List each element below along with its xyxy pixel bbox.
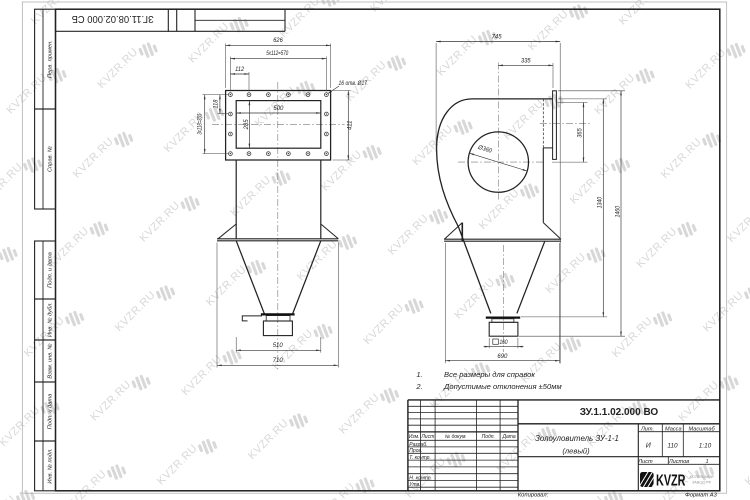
svg-text:Масштаб: Масштаб	[689, 427, 716, 433]
svg-text:2.: 2.	[415, 382, 422, 391]
svg-text:3x118=355: 3x118=355	[197, 113, 204, 134]
svg-text:Инв. № подл.: Инв. № подл.	[47, 448, 53, 483]
svg-text:1:10: 1:10	[699, 443, 712, 450]
svg-text:Н. контр.: Н. контр.	[409, 475, 432, 481]
svg-text:690: 690	[497, 353, 507, 360]
svg-text:411: 411	[346, 120, 353, 130]
svg-text:КОТЕЛЬНЫЙ: КОТЕЛЬНЫЙ	[690, 475, 714, 479]
svg-text:16 отв. Ø17: 16 отв. Ø17	[339, 81, 368, 87]
svg-text:Справ. №: Справ. №	[47, 146, 53, 172]
svg-text:1.: 1.	[416, 370, 422, 379]
svg-text:Золоуловитель ЗУ-1-1: Золоуловитель ЗУ-1-1	[535, 434, 619, 443]
svg-text:1340: 1340	[597, 196, 604, 208]
svg-text:1460: 1460	[614, 206, 621, 218]
svg-text:Подп.: Подп.	[482, 434, 495, 440]
svg-text:118: 118	[212, 99, 219, 108]
svg-text:Дата: Дата	[501, 434, 515, 440]
svg-text:№ докум.: № докум.	[445, 434, 467, 440]
svg-text:Лит.: Лит.	[640, 427, 654, 433]
svg-text:710: 710	[273, 357, 283, 364]
svg-text:KVZR: KVZR	[656, 473, 686, 490]
svg-text:5x112=570: 5x112=570	[266, 50, 288, 57]
svg-text:Перв. примен.: Перв. примен.	[47, 40, 53, 78]
svg-text:Утв.: Утв.	[409, 482, 420, 488]
svg-text:365: 365	[577, 128, 584, 138]
svg-text:Подп. и дата: Подп. и дата	[47, 252, 53, 288]
svg-text:Пров.: Пров.	[409, 448, 422, 454]
svg-text:ЗАВОД РФ: ЗАВОД РФ	[692, 481, 711, 485]
svg-text:110: 110	[667, 443, 678, 450]
svg-text:Разраб.: Разраб.	[409, 442, 427, 448]
svg-text:Листов: Листов	[668, 459, 689, 465]
svg-text:285: 285	[243, 119, 250, 130]
svg-text:Копировал:: Копировал:	[518, 493, 549, 499]
svg-text:Масса: Масса	[665, 427, 682, 433]
svg-text:510: 510	[273, 342, 283, 349]
svg-text:Лист: Лист	[637, 459, 653, 465]
svg-text:1: 1	[705, 459, 708, 465]
svg-text:Допустимые отклонения ±50мм: Допустимые отклонения ±50мм	[443, 382, 562, 391]
svg-text:745: 745	[492, 33, 502, 40]
svg-text:ЗУ.1.1.02.000 ВО: ЗУ.1.1.02.000 ВО	[580, 407, 659, 418]
svg-text:ЗГ.11.08.02.000 СБ: ЗГ.11.08.02.000 СБ	[72, 13, 154, 24]
svg-text:(левый): (левый)	[562, 446, 590, 455]
svg-text:112: 112	[235, 66, 244, 73]
svg-text:Т. контр.: Т. контр.	[409, 455, 431, 461]
svg-text:335: 335	[521, 57, 531, 64]
svg-text:Инв. № дубл.: Инв. № дубл.	[47, 302, 53, 337]
svg-text:500: 500	[273, 105, 283, 112]
svg-text:Подп. и дата: Подп. и дата	[47, 394, 53, 430]
svg-text:Формат А3: Формат А3	[685, 493, 717, 499]
svg-text:160: 160	[500, 340, 509, 346]
svg-text:Взам. инв. №: Взам. инв. №	[47, 343, 53, 378]
svg-text:Все размеры для справок: Все размеры для справок	[444, 370, 535, 379]
svg-text:626: 626	[273, 37, 283, 44]
svg-text:Изм.: Изм.	[409, 434, 420, 440]
svg-text:Лист: Лист	[420, 434, 434, 440]
